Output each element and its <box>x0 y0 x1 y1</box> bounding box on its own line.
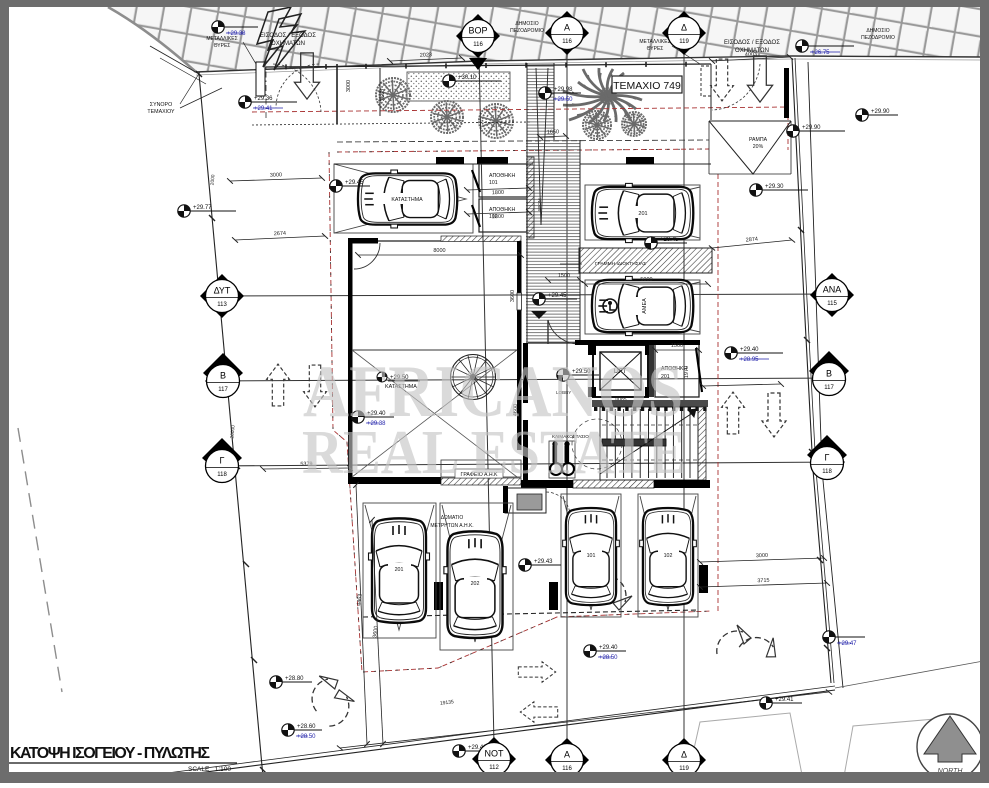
svg-text:+30.10: +30.10 <box>458 75 477 81</box>
svg-text:ΣΥΝΟΡΟ: ΣΥΝΟΡΟ <box>150 102 172 108</box>
svg-text:201: 201 <box>395 567 404 573</box>
svg-text:ΝΟΤ: ΝΟΤ <box>485 749 505 759</box>
svg-text:ΔΡΟΜ: ΔΡΟΜ <box>537 198 542 212</box>
svg-text:1800: 1800 <box>492 214 504 220</box>
svg-text:101: 101 <box>587 553 596 559</box>
svg-text:+29.40: +29.40 <box>740 347 759 353</box>
svg-text:Δ: Δ <box>681 23 687 33</box>
svg-text:ΔΗΜΟΣΙΟ: ΔΗΜΟΣΙΟ <box>515 21 538 27</box>
svg-text:112: 112 <box>489 765 499 771</box>
svg-text:Α: Α <box>564 750 570 760</box>
svg-text:ΜΕΤΑΛΛΙΚΕΣ: ΜΕΤΑΛΛΙΚΕΣ <box>639 39 670 45</box>
svg-text:+29.43: +29.43 <box>534 559 553 565</box>
svg-text:ΚΑΤΑΣΤΗΜΑ: ΚΑΤΑΣΤΗΜΑ <box>391 197 423 203</box>
svg-text:117: 117 <box>218 387 228 393</box>
svg-text:ΜΕΤΑΛΛΙΚΕΣ: ΜΕΤΑΛΛΙΚΕΣ <box>206 36 237 42</box>
svg-text:3000: 3000 <box>756 553 768 559</box>
svg-text:+29.45: +29.45 <box>548 293 567 299</box>
svg-text:+28.95: +28.95 <box>740 357 759 363</box>
svg-text:1650: 1650 <box>547 129 559 135</box>
svg-text:2023: 2023 <box>420 52 432 59</box>
svg-text:5000: 5000 <box>640 277 652 283</box>
svg-text:+29.40: +29.40 <box>599 645 618 651</box>
svg-text:ΑΠΟΘΗΚΗ: ΑΠΟΘΗΚΗ <box>489 207 515 213</box>
svg-text:118: 118 <box>822 469 832 475</box>
svg-text:ΘΥΡΕΣ: ΘΥΡΕΣ <box>647 46 664 52</box>
svg-text:201: 201 <box>638 211 647 217</box>
svg-text:1500: 1500 <box>671 343 683 349</box>
svg-text:101: 101 <box>489 180 498 186</box>
svg-text:118: 118 <box>217 472 227 478</box>
svg-text:ΤΕΜΑΧΙΟ 749: ΤΕΜΑΧΙΟ 749 <box>613 80 681 92</box>
svg-text:ΠΕΖΟΔΡΟΜΙΟ: ΠΕΖΟΔΡΟΜΙΟ <box>510 28 544 34</box>
svg-text:ΚΑΤΟΨΗ ΙΣΟΓΕΙΟΥ - ΠΥΛΩΤΗΣ: ΚΑΤΟΨΗ ΙΣΟΓΕΙΟΥ - ΠΥΛΩΤΗΣ <box>10 745 210 762</box>
svg-text:+29.45: +29.45 <box>345 180 364 186</box>
svg-text:ΑΝΑ: ΑΝΑ <box>823 285 842 295</box>
svg-text:+29.41: +29.41 <box>775 697 794 703</box>
svg-text:+29.50: +29.50 <box>554 97 573 103</box>
svg-text:119: 119 <box>679 766 689 772</box>
svg-text:Γ: Γ <box>220 456 225 466</box>
svg-text:ΟΧΗΜΑΤΩΝ: ΟΧΗΜΑΤΩΝ <box>271 41 305 47</box>
svg-text:8000: 8000 <box>433 248 445 254</box>
svg-text:3715: 3715 <box>757 578 769 584</box>
svg-text:ΡΑΜΠΑ: ΡΑΜΠΑ <box>749 137 768 143</box>
svg-text:Β: Β <box>220 371 226 381</box>
svg-text:202: 202 <box>471 581 480 587</box>
svg-text:ΔΥΤ: ΔΥΤ <box>214 286 231 296</box>
svg-text:20%: 20% <box>753 144 764 150</box>
svg-text:102: 102 <box>664 553 673 559</box>
svg-text:+29.36: +29.36 <box>254 96 273 102</box>
svg-text:ΟΧΗΜΑΤΩΝ: ΟΧΗΜΑΤΩΝ <box>735 48 769 54</box>
svg-text:ΔΗΜΟΣΙΟ: ΔΗΜΟΣΙΟ <box>866 28 889 34</box>
svg-text:2663: 2663 <box>380 89 386 101</box>
svg-text:3000: 3000 <box>346 80 352 92</box>
svg-text:+29.98: +29.98 <box>554 87 573 93</box>
svg-text:115: 115 <box>827 301 837 307</box>
svg-text:116: 116 <box>562 39 572 45</box>
svg-text:+28.50: +28.50 <box>599 655 618 661</box>
svg-text:ΑΜΕΑ: ΑΜΕΑ <box>642 298 648 314</box>
svg-text:116: 116 <box>562 766 572 772</box>
svg-text:ΠΕΖΟΔΡΟΜΙΟ: ΠΕΖΟΔΡΟΜΙΟ <box>861 35 895 41</box>
svg-text:ΘΥΡΕΣ: ΘΥΡΕΣ <box>214 43 231 49</box>
svg-text:1800: 1800 <box>492 190 504 196</box>
svg-text:Β: Β <box>826 369 832 379</box>
svg-text:119: 119 <box>679 39 689 45</box>
svg-text:3000: 3000 <box>270 172 282 178</box>
svg-text:ΔΩΜΑΤΙΟ: ΔΩΜΑΤΙΟ <box>441 515 464 521</box>
svg-text:+29.45: +29.45 <box>660 237 679 243</box>
svg-text:+28.60: +28.60 <box>297 724 316 730</box>
svg-text:113: 113 <box>217 302 227 308</box>
svg-text:ΜΕΤΡΗΤΩΝ Α.Η.Κ.: ΜΕΤΡΗΤΩΝ Α.Η.Κ. <box>430 523 473 529</box>
svg-text:SCALE 1:100: SCALE 1:100 <box>188 766 231 773</box>
svg-text:+29.30: +29.30 <box>765 184 784 190</box>
svg-text:+29.47: +29.47 <box>838 641 857 647</box>
svg-text:117: 117 <box>824 385 834 391</box>
svg-text:ΓΡΑΜΜΗ ΙΔΙΟΚΤΗΣΙΑΣ: ΓΡΑΜΜΗ ΙΔΙΟΚΤΗΣΙΑΣ <box>595 261 646 267</box>
svg-text:+29.90: +29.90 <box>871 109 890 115</box>
svg-text:+29.90: +29.90 <box>802 125 821 131</box>
svg-text:REAL ESTATE: REAL ESTATE <box>302 419 686 487</box>
svg-text:1500: 1500 <box>558 273 570 279</box>
svg-text:Γ: Γ <box>825 453 830 463</box>
svg-text:2874: 2874 <box>746 236 759 243</box>
svg-text:2674: 2674 <box>274 231 287 238</box>
svg-text:ΑΠΟΘΗΚΗ: ΑΠΟΘΗΚΗ <box>489 173 515 179</box>
svg-text:ΒΟΡ: ΒΟΡ <box>468 26 487 36</box>
svg-text:116: 116 <box>473 42 483 48</box>
svg-text:Δ: Δ <box>681 750 687 760</box>
svg-text:+28.50: +28.50 <box>297 734 316 740</box>
svg-text:1970: 1970 <box>684 366 690 378</box>
svg-text:+26.75: +26.75 <box>811 50 830 56</box>
svg-text:3600: 3600 <box>510 290 516 302</box>
svg-text:+28.80: +28.80 <box>285 676 304 682</box>
svg-text:+29.77: +29.77 <box>193 205 212 211</box>
svg-text:ΕΙΣΟΔΟΣ / ΕΞΟΔΟΣ: ΕΙΣΟΔΟΣ / ΕΞΟΔΟΣ <box>260 33 316 39</box>
svg-text:ΕΙΣΟΔΟΣ / ΕΞΟΔΟΣ: ΕΙΣΟΔΟΣ / ΕΞΟΔΟΣ <box>724 40 780 46</box>
svg-text:2000: 2000 <box>209 174 216 186</box>
svg-text:Α: Α <box>564 23 570 33</box>
svg-text:+29.41: +29.41 <box>254 106 273 112</box>
svg-text:ΤΕΜΑΧΙΟΥ: ΤΕΜΑΧΙΟΥ <box>147 109 175 115</box>
